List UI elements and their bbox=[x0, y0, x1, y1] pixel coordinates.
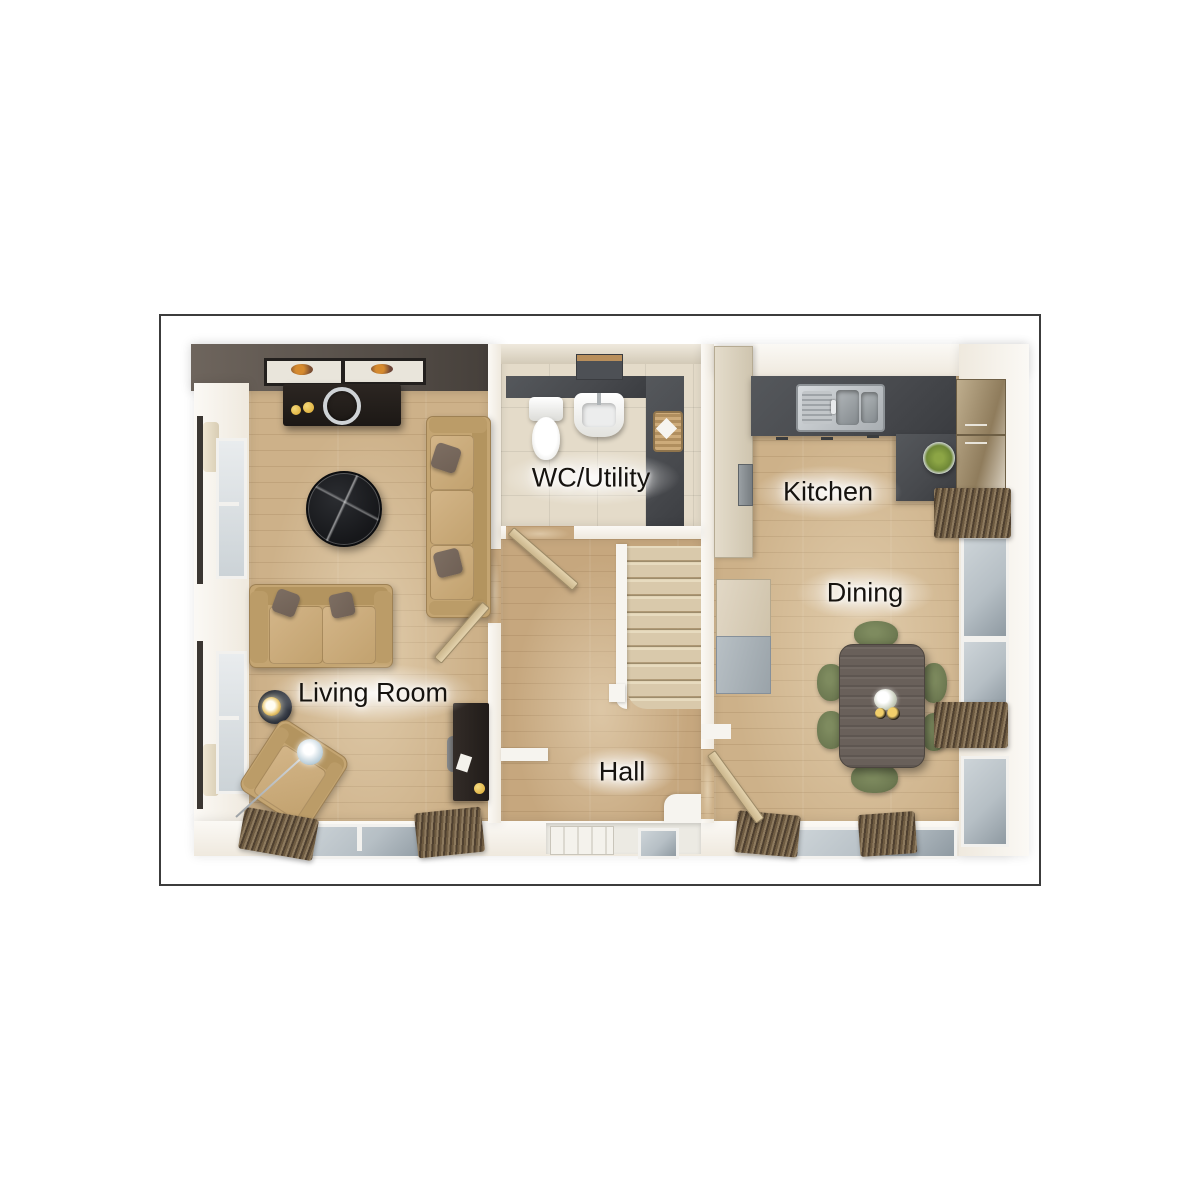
dining-storage-unit-lower bbox=[716, 636, 771, 694]
dining-radiator-south-right bbox=[858, 811, 918, 857]
sink-tap bbox=[831, 400, 836, 414]
cabinet-handle bbox=[867, 435, 879, 438]
room-label-living-room: Living Room bbox=[298, 678, 448, 709]
round-coffee-table bbox=[306, 471, 382, 547]
front-door bbox=[550, 826, 614, 855]
sofa-cushion bbox=[269, 606, 323, 664]
dining-east-window-lower bbox=[961, 756, 1009, 847]
cabinet-handle bbox=[821, 437, 833, 440]
understairs-wall bbox=[664, 794, 701, 823]
sink-bowl bbox=[861, 392, 878, 423]
wc-basin bbox=[574, 393, 624, 437]
basket-towel bbox=[656, 418, 677, 439]
media-console bbox=[283, 384, 401, 426]
sink-drainer bbox=[802, 391, 832, 424]
sofa-arm bbox=[374, 591, 392, 663]
dining-radiator-south-left bbox=[734, 810, 800, 857]
floorplan-frame: Living Room WC/Utility Kitchen Dining Ha… bbox=[159, 314, 1041, 886]
sofa-cushion bbox=[430, 490, 474, 545]
chrome-ring-decor bbox=[323, 387, 361, 425]
floorplan-canvas: Living Room WC/Utility Kitchen Dining Ha… bbox=[0, 0, 1200, 1200]
three-seat-sofa bbox=[426, 416, 491, 618]
sofa-backrest bbox=[472, 421, 487, 613]
oven bbox=[738, 464, 753, 506]
centerpiece-bottle bbox=[887, 707, 900, 720]
staircase bbox=[627, 546, 701, 709]
dining-table bbox=[839, 644, 925, 768]
room-label-hall: Hall bbox=[599, 757, 646, 788]
picture-art bbox=[371, 364, 393, 374]
two-seat-sofa bbox=[249, 584, 393, 668]
basin-bowl bbox=[582, 403, 616, 427]
dining-wall-stub bbox=[701, 724, 731, 739]
living-west-window-upper bbox=[216, 438, 247, 579]
gold-bowl-decor bbox=[291, 405, 301, 415]
dining-radiator-east bbox=[934, 702, 1008, 748]
arc-lamp-shade bbox=[297, 739, 323, 765]
window-mullion bbox=[357, 826, 362, 851]
kitchen-tall-units bbox=[714, 346, 753, 558]
desk-paper bbox=[456, 754, 472, 773]
kitchen-wall-cabinets bbox=[956, 379, 1006, 493]
room-label-wc-utility: WC/Utility bbox=[532, 463, 650, 494]
room-label-kitchen: Kitchen bbox=[783, 477, 873, 508]
gold-bowl-decor bbox=[303, 402, 314, 413]
cabinet-divider bbox=[957, 434, 1005, 436]
picture-frame-right bbox=[342, 358, 426, 385]
basin-tap bbox=[597, 393, 601, 405]
laundry-basket bbox=[653, 411, 683, 452]
centerpiece-bottle bbox=[875, 708, 886, 719]
sofa-arm bbox=[429, 417, 487, 433]
living-radiator-right bbox=[414, 807, 485, 859]
wc-mirror-shelf bbox=[576, 354, 623, 380]
dining-east-window-upper bbox=[961, 536, 1009, 639]
dining-east-window-mid bbox=[961, 639, 1009, 709]
kitchen-sink bbox=[796, 384, 885, 432]
hall-wall-stub bbox=[501, 748, 548, 761]
sink-bowl bbox=[836, 390, 859, 425]
desk-gold-ornament bbox=[474, 783, 485, 794]
window-mullion bbox=[218, 716, 239, 720]
room-label-dining: Dining bbox=[827, 578, 904, 609]
cabinet-handle bbox=[776, 437, 788, 440]
sofa-pillow bbox=[328, 591, 356, 619]
sofa-arm bbox=[250, 591, 268, 663]
picture-art bbox=[291, 364, 313, 375]
fruit-bowl bbox=[923, 442, 955, 474]
cabinet-handle bbox=[965, 442, 987, 444]
front-door-sidelight bbox=[638, 828, 679, 859]
living-west-window-lower bbox=[216, 651, 247, 794]
kitchen-radiator bbox=[934, 488, 1011, 538]
window-mullion bbox=[218, 502, 239, 506]
stair-newel bbox=[609, 684, 625, 702]
dining-storage-unit-upper bbox=[716, 579, 771, 638]
cabinet-handle bbox=[965, 424, 987, 426]
picture-frame-left bbox=[264, 358, 344, 386]
